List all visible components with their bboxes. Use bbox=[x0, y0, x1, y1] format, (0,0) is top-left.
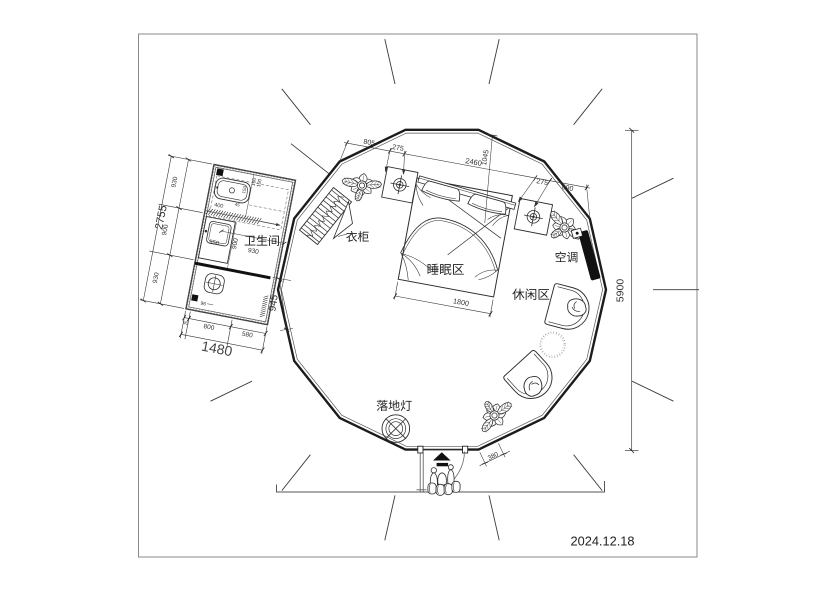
svg-text:2024.12.18: 2024.12.18 bbox=[570, 534, 634, 549]
svg-text:5900: 5900 bbox=[615, 279, 627, 303]
